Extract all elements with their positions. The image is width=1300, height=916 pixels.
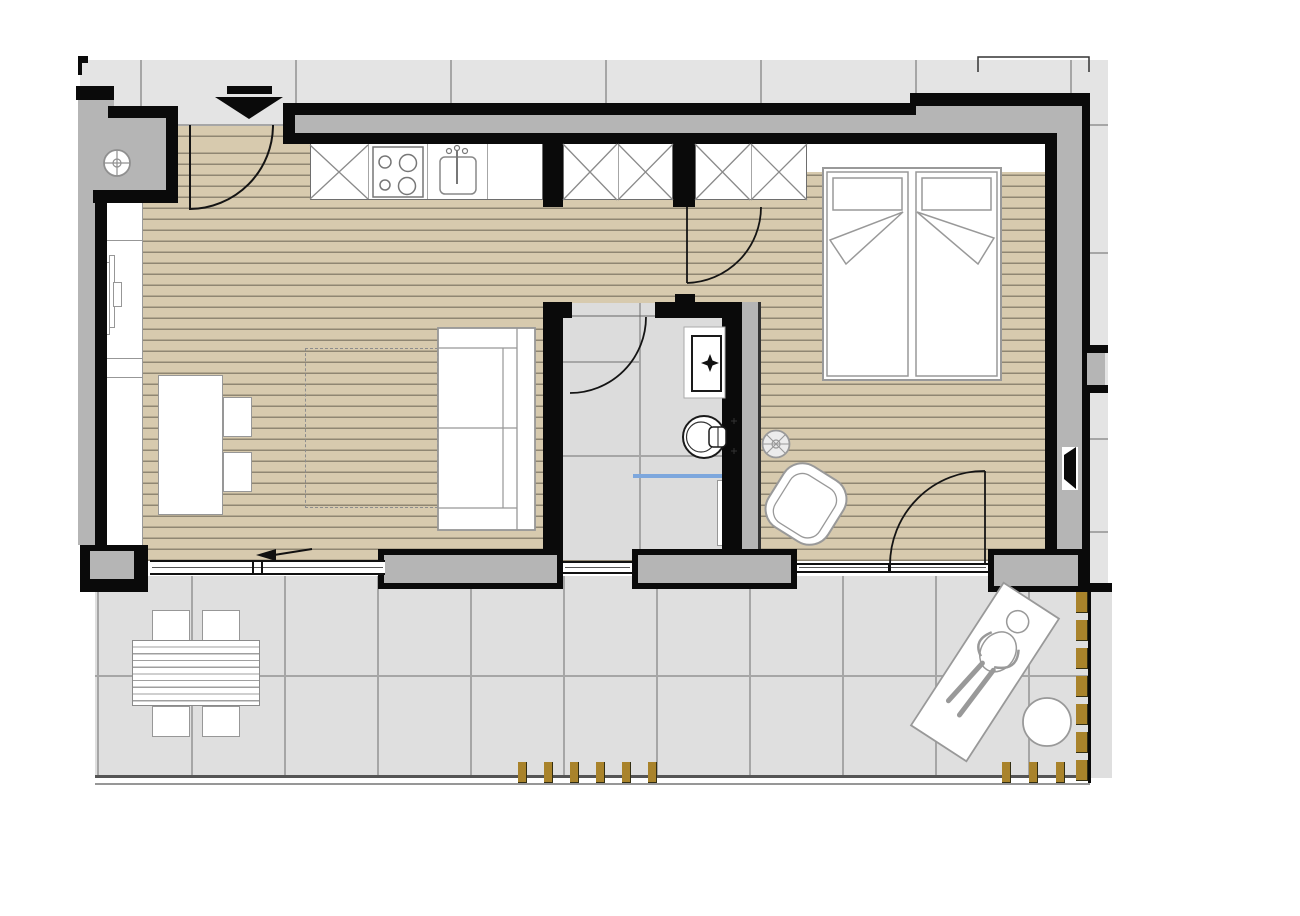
dining-chair <box>223 397 252 437</box>
railing-post <box>1029 762 1038 783</box>
window-glazing-line <box>799 567 986 568</box>
bedroom-wall-gap <box>807 143 1045 172</box>
counter-divider <box>427 143 428 199</box>
wall-notch-black <box>1082 385 1108 393</box>
window-glazing-line <box>152 567 383 568</box>
rug <box>305 348 438 508</box>
wall-top-gray <box>292 115 1080 133</box>
wall-top-cap <box>283 103 295 144</box>
terrace-tile-joint <box>563 576 565 778</box>
wall-notch-black <box>1082 345 1108 353</box>
terrace-chair <box>202 706 240 737</box>
railing-post <box>1076 704 1088 725</box>
dining-table <box>158 375 223 515</box>
party-wall-mark <box>78 56 88 63</box>
terrace-edge-line <box>95 783 1090 785</box>
railing-post <box>648 762 657 783</box>
left-builtin-wardrobe <box>105 143 143 548</box>
wall-niche <box>1062 447 1078 490</box>
window-glazing-line <box>565 567 630 568</box>
builtin-divider <box>105 358 143 359</box>
railing-post <box>1076 732 1088 753</box>
wall-corner-br-gray <box>994 555 1078 586</box>
wardrobe-divider <box>618 143 619 200</box>
bathroom-floor <box>563 303 725 560</box>
terrace-tile-joint <box>470 576 472 778</box>
radiator-knob <box>113 282 122 307</box>
terrace-tile-joint <box>935 576 937 778</box>
wall-entry-black <box>108 106 178 118</box>
counter-divider <box>368 143 369 199</box>
window-frame-divider <box>261 560 263 575</box>
railing-post <box>1076 760 1088 781</box>
wall-top-black <box>910 93 1090 106</box>
bathroom-tile-joint <box>639 303 641 560</box>
terrace-edge-outer <box>95 775 1090 778</box>
railing-post <box>1076 676 1088 697</box>
wall-notch-gray <box>1087 353 1105 385</box>
terrace-tile-joint <box>749 576 751 778</box>
railing-post <box>1076 648 1088 669</box>
terrace-chair <box>202 610 240 641</box>
dining-chair <box>223 452 252 492</box>
bathroom-wall-gray <box>742 302 758 560</box>
wall-right-gray <box>1055 106 1085 560</box>
window-frame-divider <box>252 560 254 575</box>
railing-post <box>518 762 527 783</box>
bathroom-wall-black <box>722 318 742 560</box>
railing-post <box>1076 592 1088 613</box>
bathroom-tile-joint <box>563 361 640 363</box>
builtin-divider <box>105 240 143 241</box>
bathroom-wall-stub <box>675 294 695 303</box>
railing-post <box>596 762 605 783</box>
bathroom-wall-black <box>543 302 572 318</box>
wall-bottom-gray <box>384 555 557 583</box>
terrace-tile-joint <box>1028 576 1030 778</box>
bathroom-wall-black <box>655 302 742 318</box>
terrace-table <box>132 640 260 706</box>
railing-post <box>544 762 553 783</box>
neighbor-wall-line <box>1080 583 1112 592</box>
builtin-divider <box>105 377 143 378</box>
kitchen-pier <box>543 143 563 207</box>
terrace-tile-joint <box>97 576 99 778</box>
terrace-tile-joint <box>842 576 844 778</box>
terrace-tile-joint <box>377 576 379 778</box>
wall-top-black <box>283 103 924 115</box>
terrace-tile-joint <box>284 576 286 778</box>
terrace-chair <box>152 706 190 737</box>
floor-plan-stage <box>0 0 1300 916</box>
party-wall-mark <box>78 63 82 75</box>
railing-post <box>570 762 579 783</box>
railing-post <box>1002 762 1011 783</box>
terrace-chair <box>152 610 190 641</box>
window-frame-divider <box>888 563 891 573</box>
railing-post <box>1056 762 1065 783</box>
wall-right-black <box>1045 133 1057 560</box>
floor-plan <box>0 0 1300 916</box>
shower-glass <box>633 474 724 478</box>
wall-bottom-gray <box>638 555 791 583</box>
wall-corner-bl-gray <box>90 551 134 579</box>
wardrobe-divider <box>751 143 752 200</box>
bathroom-wall-edge <box>758 302 761 560</box>
wall-entry-black <box>76 86 114 100</box>
terrace-tile-joint <box>656 576 658 778</box>
wall-entry-black <box>166 118 178 196</box>
wood-floor-entry <box>178 126 290 143</box>
counter-divider <box>487 143 488 199</box>
bathroom-tile-joint <box>563 455 725 457</box>
terrace-railing-line <box>1088 592 1091 783</box>
bathroom-wall-black <box>543 302 563 560</box>
railing-post <box>622 762 631 783</box>
railing-post <box>1076 620 1088 641</box>
corridor-pier <box>673 143 695 207</box>
neighbor-terrace <box>1091 592 1112 778</box>
